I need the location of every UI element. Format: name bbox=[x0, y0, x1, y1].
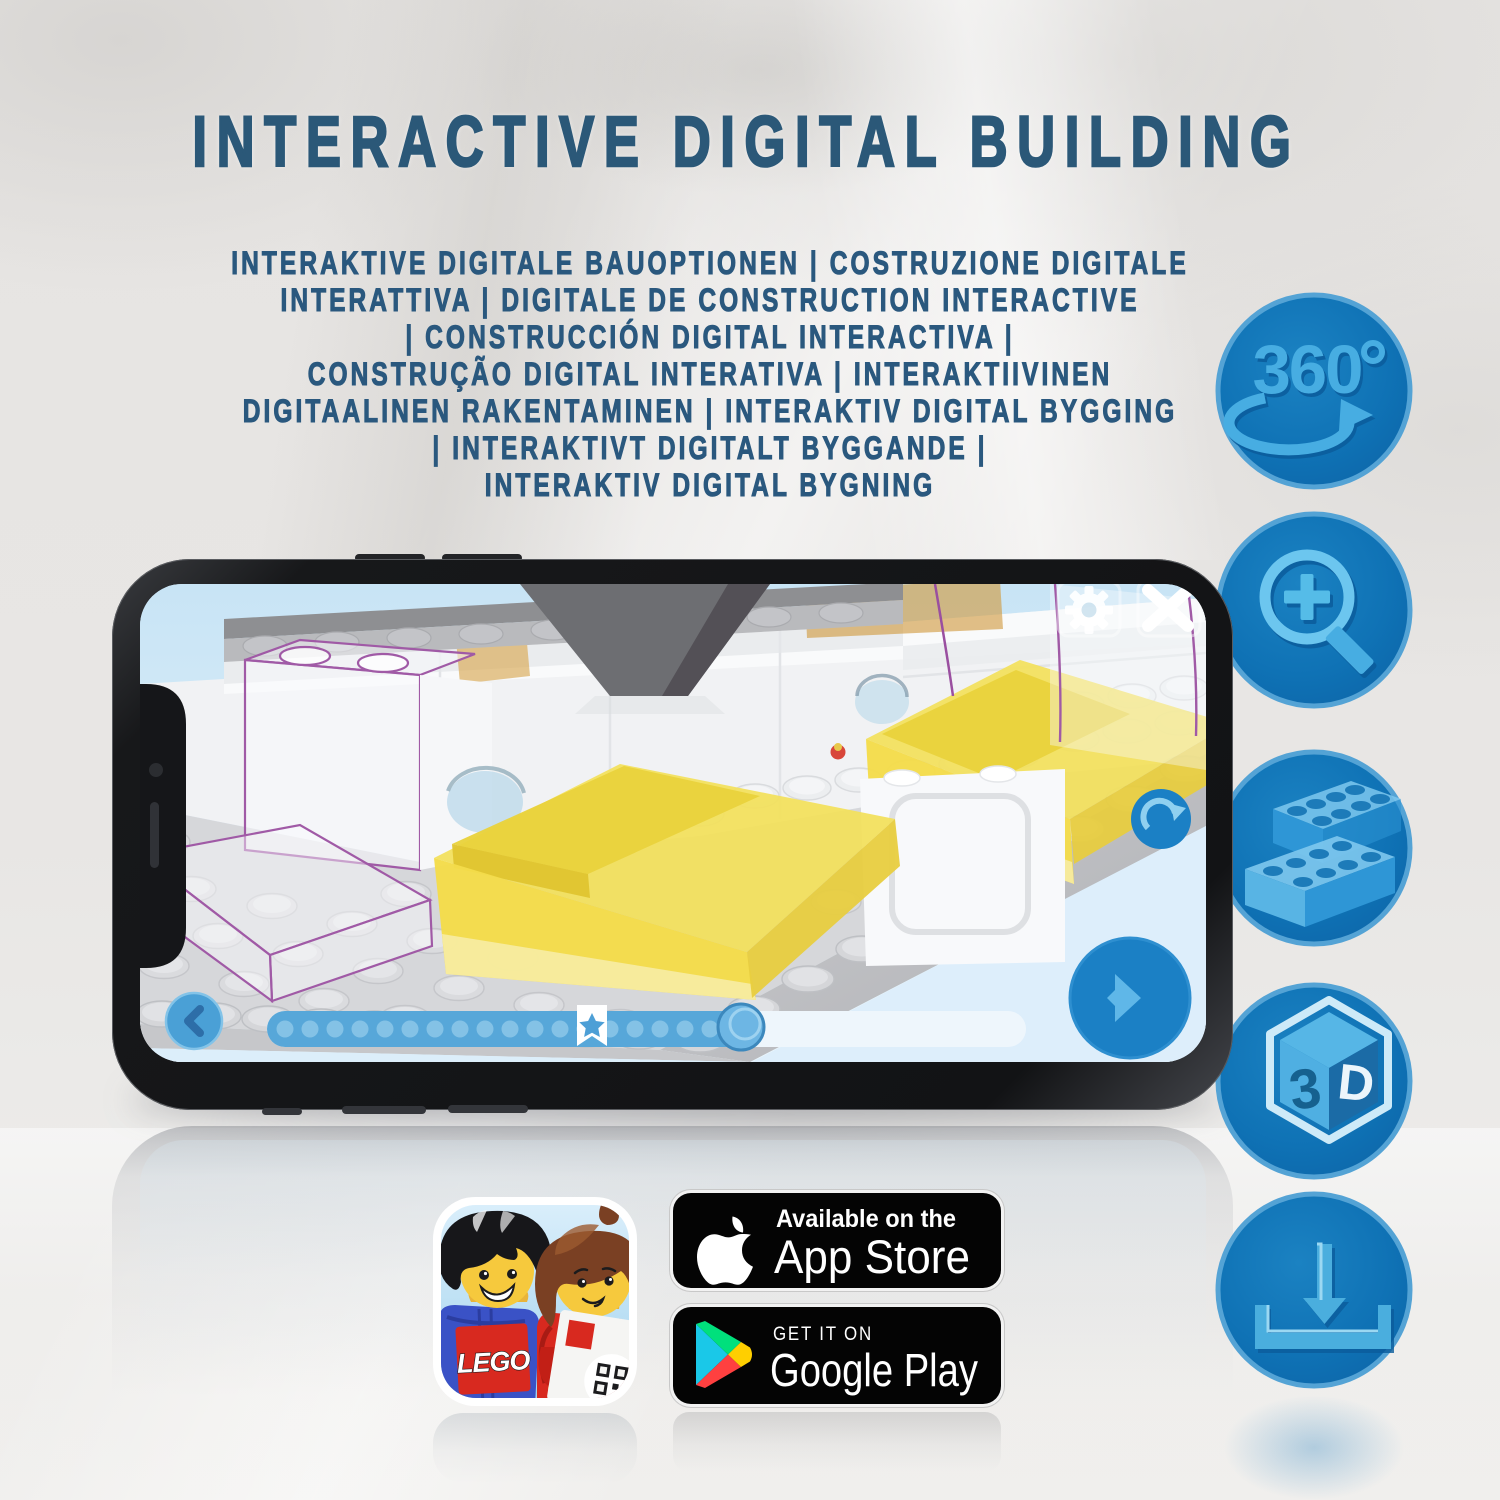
svg-text:Google Play: Google Play bbox=[770, 1344, 978, 1396]
svg-text:D: D bbox=[1335, 1053, 1377, 1112]
svg-text:GET IT ON: GET IT ON bbox=[773, 1324, 873, 1345]
svg-text:360: 360 bbox=[1252, 331, 1361, 408]
svg-text:Available on the: Available on the bbox=[776, 1205, 956, 1233]
svg-text:App Store: App Store bbox=[774, 1230, 970, 1283]
svg-text:LEGO: LEGO bbox=[456, 1345, 531, 1379]
